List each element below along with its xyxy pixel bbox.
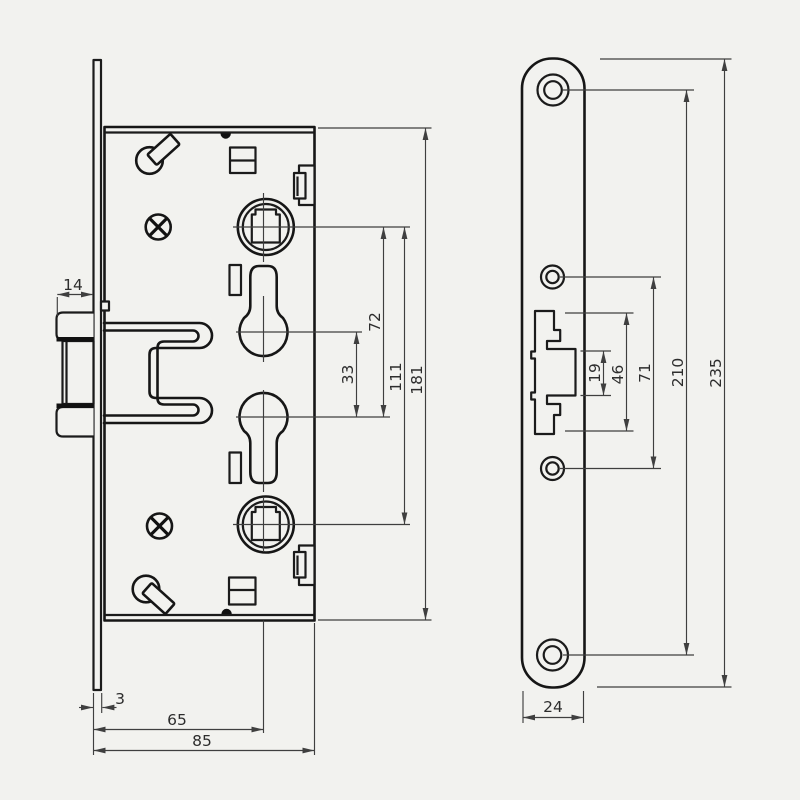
phillips-screw-bottom <box>147 514 172 539</box>
dim-label-19: 19 <box>586 363 604 383</box>
bolt-head-bottom-block <box>57 407 94 437</box>
dim-label-235: 235 <box>707 358 725 388</box>
dim-label-210: 210 <box>669 358 687 388</box>
dim-label-14: 14 <box>63 276 83 294</box>
follower-square-hole-bottom <box>252 507 280 540</box>
guide-slot-top <box>230 265 242 295</box>
faceplate-view <box>522 59 585 688</box>
dim-label-85: 85 <box>192 732 212 750</box>
follower-square-hole-top <box>252 210 280 243</box>
adjustment-square-bottom <box>229 578 256 605</box>
guide-slot-bottom <box>230 453 242 484</box>
dim-label-71: 71 <box>636 363 654 383</box>
mortise-lock-drawing: 14 3 65 85 33 72 <box>0 0 800 800</box>
dim-label-72: 72 <box>366 312 384 332</box>
adjustment-square-top <box>230 148 256 174</box>
stop-tab-top-inner <box>294 173 306 199</box>
dim-label-33: 33 <box>339 365 357 385</box>
phillips-screw-top <box>146 215 171 240</box>
bolt-head-top-block <box>57 313 94 341</box>
dim-label-3: 3 <box>115 690 125 708</box>
dim-label-65: 65 <box>167 711 187 729</box>
dim-label-111: 111 <box>387 362 405 392</box>
dim-label-181: 181 <box>408 365 426 395</box>
technical-drawing-page: 14 3 65 85 33 72 <box>0 0 800 800</box>
dim-label-24: 24 <box>543 698 563 716</box>
forend-faceplate-strip <box>94 60 102 690</box>
dim-label-46: 46 <box>609 365 627 385</box>
case-wall-tab <box>101 302 109 311</box>
stop-tab-bottom-inner <box>294 552 306 578</box>
